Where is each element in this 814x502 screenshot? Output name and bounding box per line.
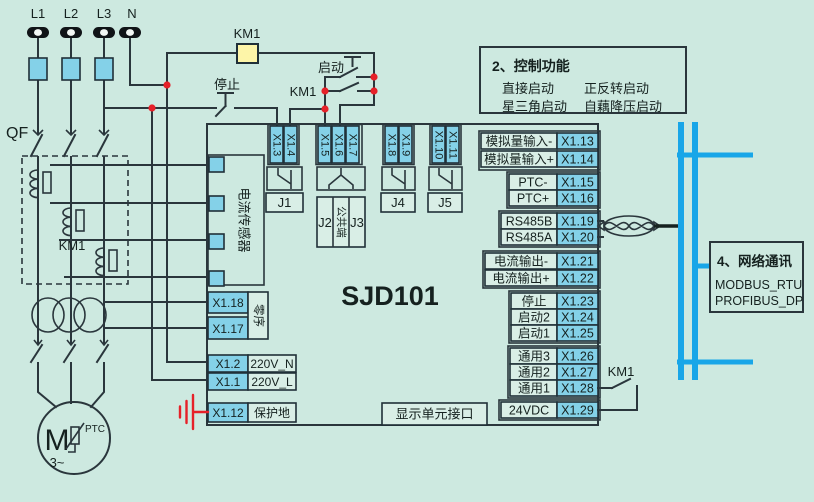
control-box-title: 2、控制功能 — [492, 58, 570, 74]
label-L3: L3 — [97, 6, 111, 21]
svg-text:模拟量输入+: 模拟量输入+ — [484, 152, 554, 167]
svg-text:X1.14: X1.14 — [561, 153, 594, 167]
km1-coil: KM1 — [234, 26, 261, 63]
network-item-modbus: MODBUS_RTU — [715, 278, 802, 292]
svg-text:电流输出-: 电流输出- — [494, 254, 548, 269]
svg-text:通用1: 通用1 — [518, 382, 550, 396]
control-item-star-delta: 星三角启动 — [502, 99, 567, 114]
control-item-autotransformer: 自藕降压启动 — [584, 99, 662, 114]
phase-wiring — [31, 38, 167, 407]
svg-text:停止: 停止 — [521, 294, 546, 309]
fuse-L3 — [95, 58, 113, 80]
junction-dots — [148, 73, 377, 112]
svg-text:X1.15: X1.15 — [561, 176, 594, 190]
terminal-L2 — [60, 27, 82, 38]
left-terminals: X1.18 X1.17 零序 X1.2 220V_N X1.1 220V_L X… — [208, 292, 296, 422]
right-terminal-row: 24VDC X1.29 — [501, 402, 598, 418]
svg-text:模拟量输入-: 模拟量输入- — [486, 134, 553, 149]
control-item-direct: 直接启动 — [502, 81, 554, 96]
start-label: 启动 — [318, 60, 344, 75]
twisted-pair-cable — [598, 216, 678, 237]
motor: M 3~ PTC — [38, 402, 110, 474]
svg-text:启动1: 启动1 — [518, 327, 550, 341]
fuse-L2 — [62, 58, 80, 80]
relay-j5-label: J5 — [438, 195, 452, 210]
fuse-L1 — [29, 58, 47, 80]
right-terminal-row: 通用3 X1.26 — [510, 348, 598, 364]
supply-terminals: L1 L2 L3 N QF — [6, 6, 141, 142]
right-terminal-row: 模拟量输入+ X1.14 — [481, 151, 598, 167]
device-model: SJD101 — [341, 281, 439, 311]
terminal-x1-2: X1.2 — [216, 357, 241, 371]
svg-text:X1.22: X1.22 — [561, 272, 594, 286]
label-L1: L1 — [31, 6, 45, 21]
relay-j3-label: J3 — [350, 215, 364, 230]
relay-common-label: 公共端 — [335, 206, 348, 238]
label-pe: 保护地 — [254, 406, 290, 420]
right-terminals: 模拟量输入- X1.13 模拟量输入+ X1.14 PTC- X1.15 PTC… — [479, 131, 600, 420]
svg-text:PTC-: PTC- — [518, 176, 547, 190]
svg-text:电流输出+: 电流输出+ — [492, 271, 549, 286]
label-220v-l: 220V_L — [251, 375, 293, 389]
km1-output-contact: KM1 — [598, 364, 637, 410]
svg-text:X1.25: X1.25 — [561, 327, 594, 341]
right-terminal-row: 启动1 X1.25 — [511, 325, 598, 341]
display-port-label: 显示单元接口 — [395, 407, 473, 422]
right-terminal-row: RS485A X1.20 — [501, 229, 598, 245]
current-transformers: KM1 — [22, 156, 208, 284]
right-terminal-row: 停止 X1.23 — [511, 293, 598, 309]
terminal-x1-11: X1.11 — [447, 131, 459, 159]
terminal-x1-3: X1.3 — [271, 134, 283, 157]
terminal-x1-6: X1.6 — [333, 134, 345, 157]
svg-text:PTC+: PTC+ — [517, 192, 549, 206]
zero-seq-label: 零序 — [252, 304, 266, 327]
label-220v-n: 220V_N — [250, 357, 293, 371]
svg-text:通用3: 通用3 — [518, 350, 550, 364]
terminal-x1-8: X1.8 — [386, 134, 398, 157]
svg-text:启动2: 启动2 — [518, 311, 550, 325]
label-N: N — [127, 6, 136, 21]
svg-text:X1.29: X1.29 — [561, 404, 594, 418]
ptc-label: PTC — [85, 424, 105, 435]
km1-aux-contact — [325, 83, 374, 91]
right-terminal-row: RS485B X1.19 — [501, 213, 598, 229]
network-bus — [677, 122, 753, 380]
right-terminal-row: 通用2 X1.27 — [510, 364, 598, 380]
km1-coil-label: KM1 — [234, 26, 261, 41]
stop-button-contact — [216, 93, 233, 116]
svg-text:X1.19: X1.19 — [561, 215, 594, 229]
svg-text:RS485B: RS485B — [506, 215, 553, 229]
earth-symbol — [180, 395, 208, 429]
svg-text:X1.21: X1.21 — [561, 255, 594, 269]
display-unit-port: 显示单元接口 — [382, 403, 487, 425]
terminal-x1-18: X1.18 — [212, 296, 244, 310]
terminal-x1-17: X1.17 — [212, 322, 244, 336]
schematic-svg: L1 L2 L3 N QF KM1 停止 启动 KM1 KM1 M 3~ — [0, 0, 814, 502]
svg-text:X1.28: X1.28 — [561, 382, 594, 396]
right-terminal-row: 电流输出+ X1.22 — [485, 270, 598, 286]
relay-j2-label: J2 — [318, 215, 332, 230]
svg-text:X1.20: X1.20 — [561, 231, 594, 245]
right-terminal-row: PTC- X1.15 — [509, 174, 598, 190]
terminal-x1-10: X1.10 — [433, 131, 445, 160]
top-terminals: X1.3 X1.4 X1.5 X1.6 X1.7 X1.8 X1.9 X1.10… — [268, 125, 461, 165]
km1-aux-label: KM1 — [290, 84, 317, 99]
svg-text:X1.27: X1.27 — [561, 366, 594, 380]
control-functions-box: 2、控制功能 直接启动 正反转启动 星三角启动 自藕降压启动 — [480, 47, 686, 114]
current-sensor: 电流传感器 — [208, 155, 264, 286]
right-terminal-row: PTC+ X1.16 — [509, 190, 598, 206]
relay-contacts: J1 J2 公共端 J3 J4 J5 — [266, 167, 462, 247]
right-terminal-row: 模拟量输入- X1.13 — [481, 133, 598, 149]
right-terminal-row: 通用1 X1.28 — [510, 380, 598, 396]
network-comm-box: 4、网络通讯 MODBUS_RTU PROFIBUS_DP — [710, 242, 803, 312]
relay-j4-label: J4 — [391, 195, 405, 210]
svg-text:X1.13: X1.13 — [561, 135, 594, 149]
terminal-x1-9: X1.9 — [400, 134, 412, 157]
terminal-L1 — [27, 27, 49, 38]
network-box-title: 4、网络通讯 — [717, 253, 793, 269]
stop-label: 停止 — [214, 77, 240, 92]
svg-text:X1.24: X1.24 — [561, 311, 594, 325]
current-sensor-label: 电流传感器 — [237, 187, 252, 252]
right-terminal-row: 启动2 X1.24 — [511, 309, 598, 325]
km1-output-label: KM1 — [608, 364, 635, 379]
motor-symbol: M — [45, 424, 70, 457]
label-QF: QF — [6, 125, 28, 142]
relay-j1-label: J1 — [278, 195, 292, 210]
network-item-profibus: PROFIBUS_DP — [715, 294, 803, 308]
wiring-diagram: L1 L2 L3 N QF KM1 停止 启动 KM1 KM1 M 3~ — [0, 0, 814, 502]
terminal-x1-12: X1.12 — [212, 406, 244, 420]
terminal-x1-4: X1.4 — [285, 134, 297, 157]
terminal-x1-7: X1.7 — [347, 134, 359, 157]
svg-text:X1.16: X1.16 — [561, 192, 594, 206]
terminal-N — [119, 27, 141, 38]
svg-text:24VDC: 24VDC — [509, 404, 549, 418]
control-item-fwd-rev: 正反转启动 — [584, 81, 649, 96]
terminal-x1-5: X1.5 — [319, 134, 331, 157]
svg-text:X1.26: X1.26 — [561, 350, 594, 364]
svg-text:通用2: 通用2 — [518, 366, 550, 380]
svg-text:X1.23: X1.23 — [561, 295, 594, 309]
right-terminal-row: 电流输出- X1.21 — [485, 253, 598, 269]
terminal-L3 — [93, 27, 115, 38]
zero-sequence-ct — [32, 298, 208, 332]
terminal-x1-1: X1.1 — [216, 375, 241, 389]
label-L2: L2 — [64, 6, 78, 21]
motor-phase: 3~ — [50, 455, 65, 470]
svg-text:RS485A: RS485A — [506, 231, 553, 245]
